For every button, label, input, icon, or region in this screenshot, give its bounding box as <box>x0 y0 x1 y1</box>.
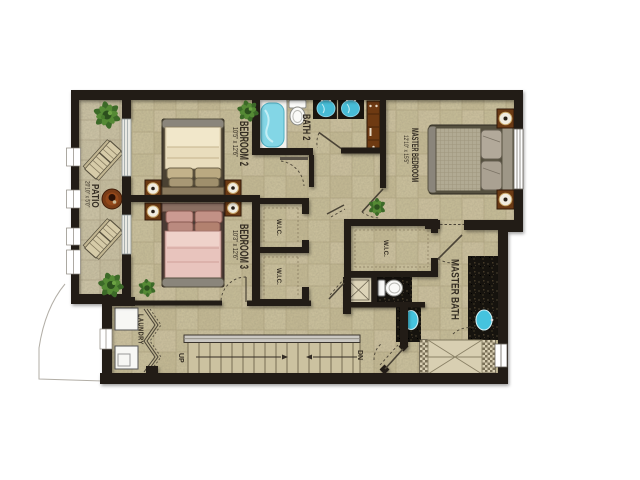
svg-text:LAUNDRY: LAUNDRY <box>136 314 144 345</box>
svg-text:DN: DN <box>356 350 363 360</box>
svg-text:PATIO: PATIO <box>90 184 102 208</box>
svg-text:W.I.C.: W.I.C. <box>382 240 389 257</box>
svg-text:MASTER BATH: MASTER BATH <box>448 259 460 320</box>
svg-text:W.I.C.: W.I.C. <box>275 219 282 236</box>
svg-text:20'10" x 5'0": 20'10" x 5'0" <box>83 181 90 207</box>
svg-text:10'3" x 12'6": 10'3" x 12'6" <box>231 230 239 260</box>
svg-text:UP: UP <box>177 353 184 363</box>
svg-text:BATH 2: BATH 2 <box>301 114 314 140</box>
svg-text:12'10" x 15'5": 12'10" x 15'5" <box>402 135 409 164</box>
svg-text:MASTER BEDROOM: MASTER BEDROOM <box>410 128 421 182</box>
svg-text:W.I.C.: W.I.C. <box>275 268 282 285</box>
svg-text:10'5" x 12'6": 10'5" x 12'6" <box>231 127 239 157</box>
